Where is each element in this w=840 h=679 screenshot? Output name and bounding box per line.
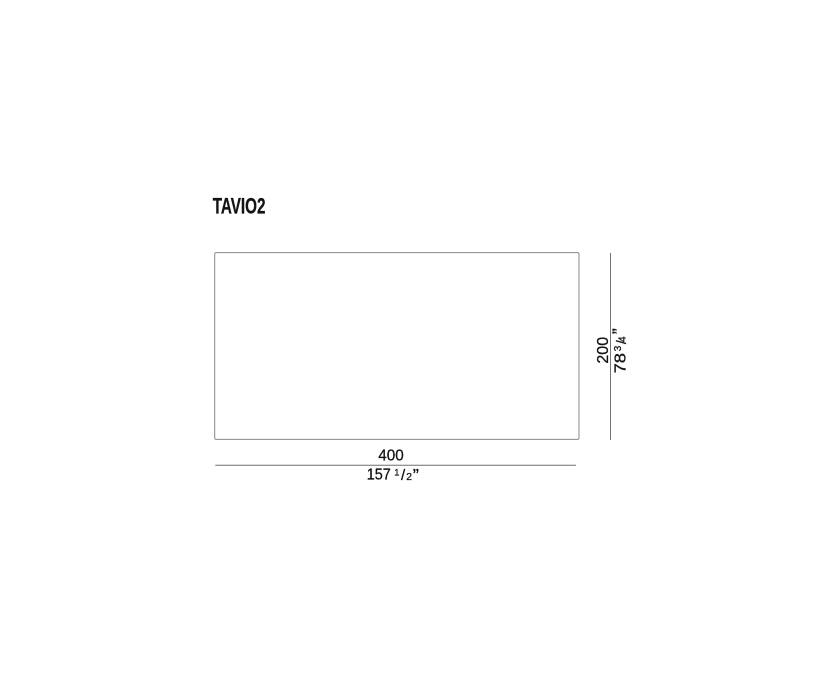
svg-text:200: 200 [595,337,612,364]
svg-text:4: 4 [618,336,629,342]
svg-text:1: 1 [394,468,399,478]
svg-text:157: 157 [367,467,391,484]
svg-text:400: 400 [378,448,404,465]
svg-text:TAVIO2: TAVIO2 [213,194,266,219]
svg-text:78: 78 [613,353,630,374]
svg-text:”: ” [413,465,419,486]
svg-text:”: ” [610,328,630,334]
svg-text:3: 3 [613,345,624,351]
svg-text:2: 2 [406,472,412,483]
